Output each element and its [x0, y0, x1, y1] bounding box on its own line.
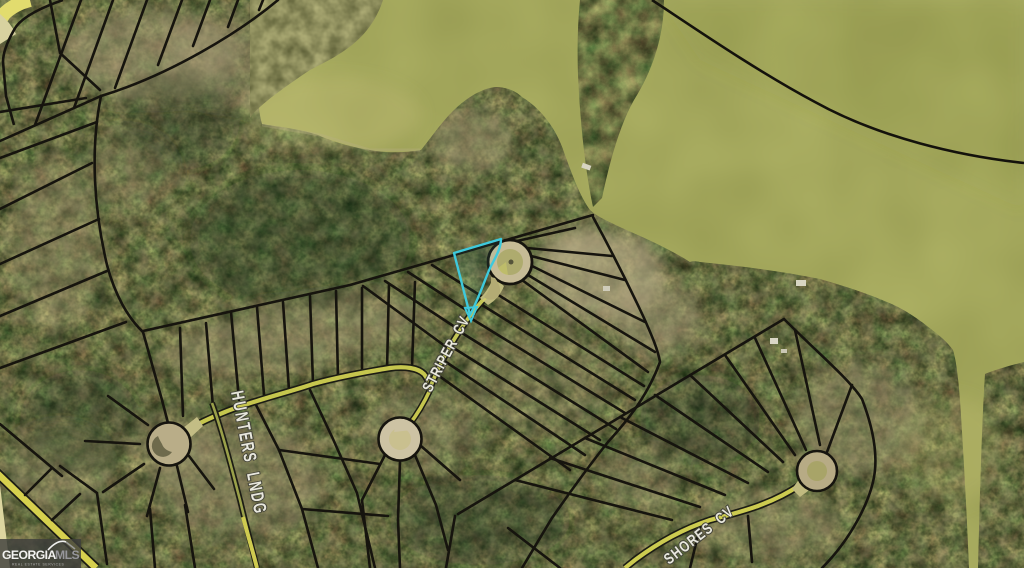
svg-text:MLS: MLS — [55, 548, 79, 562]
svg-text:REAL ESTATE SERVICES: REAL ESTATE SERVICES — [12, 563, 65, 567]
svg-text:GEORGIA: GEORGIA — [2, 548, 56, 562]
